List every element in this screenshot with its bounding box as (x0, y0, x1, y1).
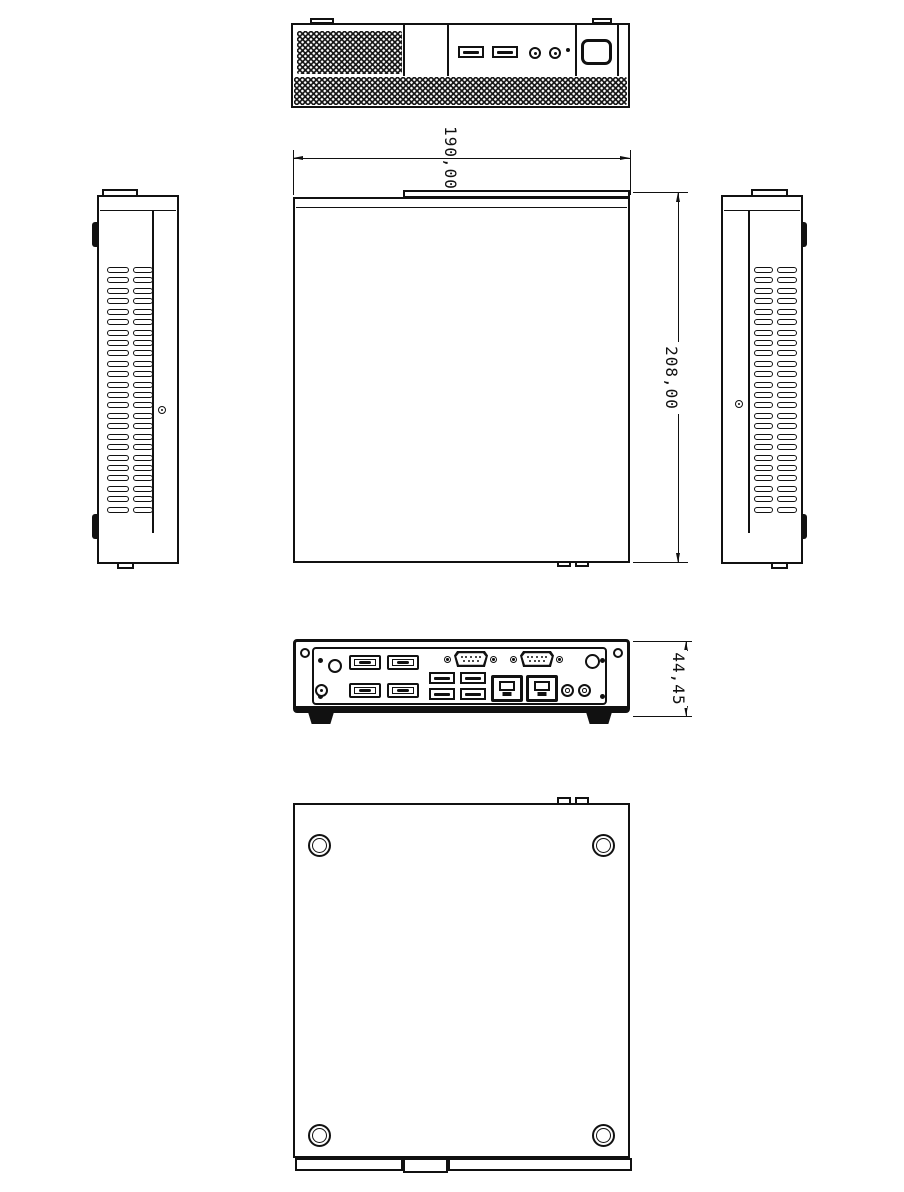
vent-slot (107, 371, 129, 377)
vent-slot (777, 382, 797, 388)
vent-slot (107, 382, 129, 388)
side-vent-column-2 (133, 267, 153, 513)
extension-line (630, 150, 631, 195)
hole-inner-ring (596, 1128, 611, 1143)
usb-tongue (465, 677, 481, 680)
screw-center (161, 409, 163, 411)
front-panel-divider-3 (575, 25, 577, 76)
depth-dimension-label: 208,00 (662, 342, 680, 414)
db9-pin-row (458, 656, 484, 658)
vent-slot (754, 413, 773, 419)
vent-slot (777, 496, 797, 502)
vent-slot (133, 319, 153, 325)
vent-slot (133, 298, 153, 304)
front-audio-jack-1 (529, 47, 541, 59)
mounting-hole-bottom-left (308, 1124, 331, 1147)
db9-pin-row (458, 660, 484, 662)
arrowhead-left (293, 156, 303, 160)
extension-line (633, 716, 692, 717)
usb-tongue (465, 693, 481, 696)
display-port-1 (349, 655, 381, 670)
db9-pin (479, 656, 481, 658)
vent-slot (133, 392, 153, 398)
width-dimension-label: 190,00 (441, 122, 459, 194)
side-top-seam (724, 210, 800, 211)
vent-slot (133, 382, 153, 388)
vent-slot (754, 423, 773, 429)
vent-slot (754, 382, 773, 388)
serial-db9-port-2 (520, 651, 554, 667)
vent-slot (754, 267, 773, 273)
chassis-screw-hole-left (300, 648, 310, 658)
vent-slot (107, 455, 129, 461)
db9-pin (527, 656, 529, 658)
db9-jackscrew (490, 656, 497, 663)
rj45-clip (538, 692, 547, 696)
right-side-view (721, 189, 803, 571)
extension-line (633, 192, 688, 193)
serial-db9-port-1 (454, 651, 488, 667)
power-led (566, 48, 570, 52)
side-top-seam (100, 210, 176, 211)
db9-pin (468, 660, 470, 662)
vent-slot (754, 402, 773, 408)
vent-slot (133, 507, 153, 513)
usb-tongue (434, 693, 450, 696)
hole-inner-ring (312, 1128, 327, 1143)
vent-slot (754, 298, 773, 304)
rj45-clip (503, 692, 512, 696)
vent-slot (133, 267, 153, 273)
port-tongue (397, 689, 410, 692)
rear-usb-port-3 (429, 688, 455, 700)
db9-pin-row (524, 660, 550, 662)
dc-power-jack (315, 684, 328, 697)
db9-jackscrew (510, 656, 517, 663)
db9-pin (461, 656, 463, 658)
vent-slot (133, 486, 153, 492)
vent-slot (133, 340, 153, 346)
vent-slot (777, 330, 797, 336)
db9-pin (463, 660, 465, 662)
vent-slot (754, 330, 773, 336)
front-usb-port-2 (492, 46, 518, 58)
left-side-view (97, 189, 179, 571)
vent-slot (107, 361, 129, 367)
screw-center (512, 658, 514, 660)
vent-slot (133, 288, 153, 294)
panel-screw (318, 658, 323, 663)
vent-slot (133, 496, 153, 502)
vent-slot (754, 361, 773, 367)
side-vent-column-1 (754, 267, 773, 513)
rj45-opening (499, 681, 516, 691)
vent-slot (107, 298, 129, 304)
vent-slot (754, 486, 773, 492)
vent-slot (107, 267, 129, 273)
side-panel-seam (748, 210, 750, 533)
vent-slot (107, 350, 129, 356)
side-screw (735, 400, 743, 408)
vent-slot (107, 475, 129, 481)
screw-center (738, 403, 740, 405)
antenna-hole-left (328, 659, 342, 673)
display-port-2 (387, 655, 419, 670)
vent-slot (133, 277, 153, 283)
side-bottom-tab (117, 562, 134, 569)
db9-pin (545, 656, 547, 658)
db9-jackscrew (444, 656, 451, 663)
vent-slot (777, 319, 797, 325)
vent-slot (754, 496, 773, 502)
dimension-line (293, 158, 630, 159)
db9-pin (477, 660, 479, 662)
front-panel-divider-4 (617, 25, 619, 76)
vent-slot (133, 350, 153, 356)
rear-usb-port-1 (429, 672, 455, 684)
hole-inner-ring (312, 838, 327, 853)
vent-slot (777, 361, 797, 367)
side-vent-column-2 (777, 267, 797, 513)
vent-slot (107, 465, 129, 471)
rear-usb-port-2 (460, 672, 486, 684)
db9-pin (470, 656, 472, 658)
panel-screw (600, 658, 605, 663)
jack-ring (582, 688, 587, 693)
rear-view (293, 639, 630, 729)
vent-slot (133, 444, 153, 450)
screw-center (446, 658, 448, 660)
usb-tongue (434, 677, 450, 680)
hole-inner-ring (596, 838, 611, 853)
vent-slot (107, 319, 129, 325)
screw-center (558, 658, 560, 660)
vent-slot (777, 350, 797, 356)
ethernet-port-1 (491, 675, 523, 702)
rear-usb-port-4 (460, 688, 486, 700)
vent-slot (133, 423, 153, 429)
vent-slot (107, 402, 129, 408)
vent-slot (777, 392, 797, 398)
antenna-hole-right (585, 654, 600, 669)
db9-pin (472, 660, 474, 662)
rear-audio-jack-2 (578, 684, 591, 697)
vent-slot (133, 402, 153, 408)
vent-slot (777, 423, 797, 429)
port-inner (354, 659, 377, 665)
vent-slot (107, 392, 129, 398)
front-view (291, 23, 630, 108)
side-bottom-tab (771, 562, 788, 569)
arrowhead-top (676, 192, 680, 202)
vent-slot (107, 423, 129, 429)
db9-pin (536, 656, 538, 658)
vent-slot (777, 465, 797, 471)
db9-pin (534, 660, 536, 662)
db9-pin (475, 656, 477, 658)
usb-tongue (497, 51, 513, 54)
vent-slot (777, 309, 797, 315)
vent-slot (133, 361, 153, 367)
vent-slot (754, 392, 773, 398)
vent-slot (133, 371, 153, 377)
vent-slot (107, 288, 129, 294)
vent-slot (754, 371, 773, 377)
port-tongue (397, 661, 410, 664)
rj45-opening (534, 681, 551, 691)
vent-slot (777, 371, 797, 377)
db9-pins (524, 653, 550, 665)
vent-slot (133, 434, 153, 440)
side-screw (158, 406, 166, 414)
bottom-view-outline (293, 803, 630, 1158)
vent-slot (777, 444, 797, 450)
display-port-3 (349, 683, 381, 698)
power-button (581, 39, 612, 65)
jack-center (534, 52, 537, 55)
top-view-outline (293, 197, 630, 563)
db9-pin-row (524, 656, 550, 658)
bottom-strip-left (295, 1158, 403, 1171)
vent-slot (107, 496, 129, 502)
vent-slot (754, 444, 773, 450)
ethernet-port-2 (526, 675, 558, 702)
vent-slot (777, 413, 797, 419)
front-panel-divider-2 (447, 25, 449, 76)
db9-pin (543, 660, 545, 662)
port-inner (354, 687, 377, 693)
port-inner (392, 687, 415, 693)
rear-base-bar (296, 706, 627, 712)
front-vent-grille-lower (294, 77, 627, 105)
vent-slot (107, 330, 129, 336)
vent-slot (777, 475, 797, 481)
jack-center (320, 689, 323, 692)
vent-slot (133, 465, 153, 471)
panel-screw (600, 694, 605, 699)
port-inner (392, 659, 415, 665)
top-view (293, 190, 630, 563)
vent-slot (133, 309, 153, 315)
bottom-strip-right (448, 1158, 632, 1171)
vent-slot (777, 277, 797, 283)
vent-slot (777, 486, 797, 492)
vent-slot (777, 340, 797, 346)
rear-audio-jack-1 (561, 684, 574, 697)
vent-slot (107, 340, 129, 346)
vent-slot (133, 413, 153, 419)
vent-slot (754, 465, 773, 471)
side-vent-column-1 (107, 267, 129, 513)
vent-slot (133, 475, 153, 481)
vent-slot (777, 267, 797, 273)
vent-slot (754, 288, 773, 294)
port-tongue (359, 661, 372, 664)
top-view-rear-tab-2 (575, 561, 589, 567)
vent-slot (754, 319, 773, 325)
db9-pin (531, 656, 533, 658)
vent-slot (777, 298, 797, 304)
mounting-hole-bottom-right (592, 1124, 615, 1147)
front-usb-port-1 (458, 46, 484, 58)
vent-slot (777, 507, 797, 513)
vent-slot (754, 507, 773, 513)
bottom-view (293, 797, 632, 1175)
vent-slot (754, 277, 773, 283)
technical-drawing-page: 190,00 208,00 (0, 0, 904, 1192)
height-dimension-label: 44,45 (669, 650, 687, 708)
db9-pin (541, 656, 543, 658)
top-view-rear-tab-1 (557, 561, 571, 567)
mounting-hole-top-right (592, 834, 615, 857)
front-panel-divider-1 (403, 25, 405, 76)
arrowhead-right (620, 156, 630, 160)
vent-slot (107, 277, 129, 283)
db9-pins (458, 653, 484, 665)
arrowhead-bottom (676, 553, 680, 563)
vent-slot (107, 413, 129, 419)
display-port-4 (387, 683, 419, 698)
vent-slot (133, 330, 153, 336)
vent-slot (777, 434, 797, 440)
rear-foot-right (586, 712, 612, 724)
rear-foot-left (308, 712, 334, 724)
vent-slot (777, 402, 797, 408)
vent-slot (754, 309, 773, 315)
vent-slot (777, 288, 797, 294)
front-vent-grille-upper (297, 31, 402, 74)
db9-pin (529, 660, 531, 662)
vent-slot (107, 309, 129, 315)
top-view-inner-edge (296, 207, 627, 208)
chassis-screw-hole-right (613, 648, 623, 658)
jack-center (554, 52, 557, 55)
vent-slot (107, 507, 129, 513)
front-audio-jack-2 (549, 47, 561, 59)
vent-slot (777, 455, 797, 461)
db9-pin (538, 660, 540, 662)
vent-slot (754, 475, 773, 481)
screw-center (492, 658, 494, 660)
vent-slot (754, 434, 773, 440)
vent-slot (107, 444, 129, 450)
vent-slot (107, 434, 129, 440)
vent-slot (754, 340, 773, 346)
vent-slot (754, 350, 773, 356)
vent-slot (107, 486, 129, 492)
db9-jackscrew (556, 656, 563, 663)
extension-line (633, 562, 688, 563)
vent-slot (133, 455, 153, 461)
vent-slot (754, 455, 773, 461)
mounting-hole-top-left (308, 834, 331, 857)
port-tongue (359, 689, 372, 692)
usb-tongue (463, 51, 479, 54)
db9-pin (465, 656, 467, 658)
jack-ring (565, 688, 570, 693)
bottom-strip-tab (403, 1158, 448, 1173)
